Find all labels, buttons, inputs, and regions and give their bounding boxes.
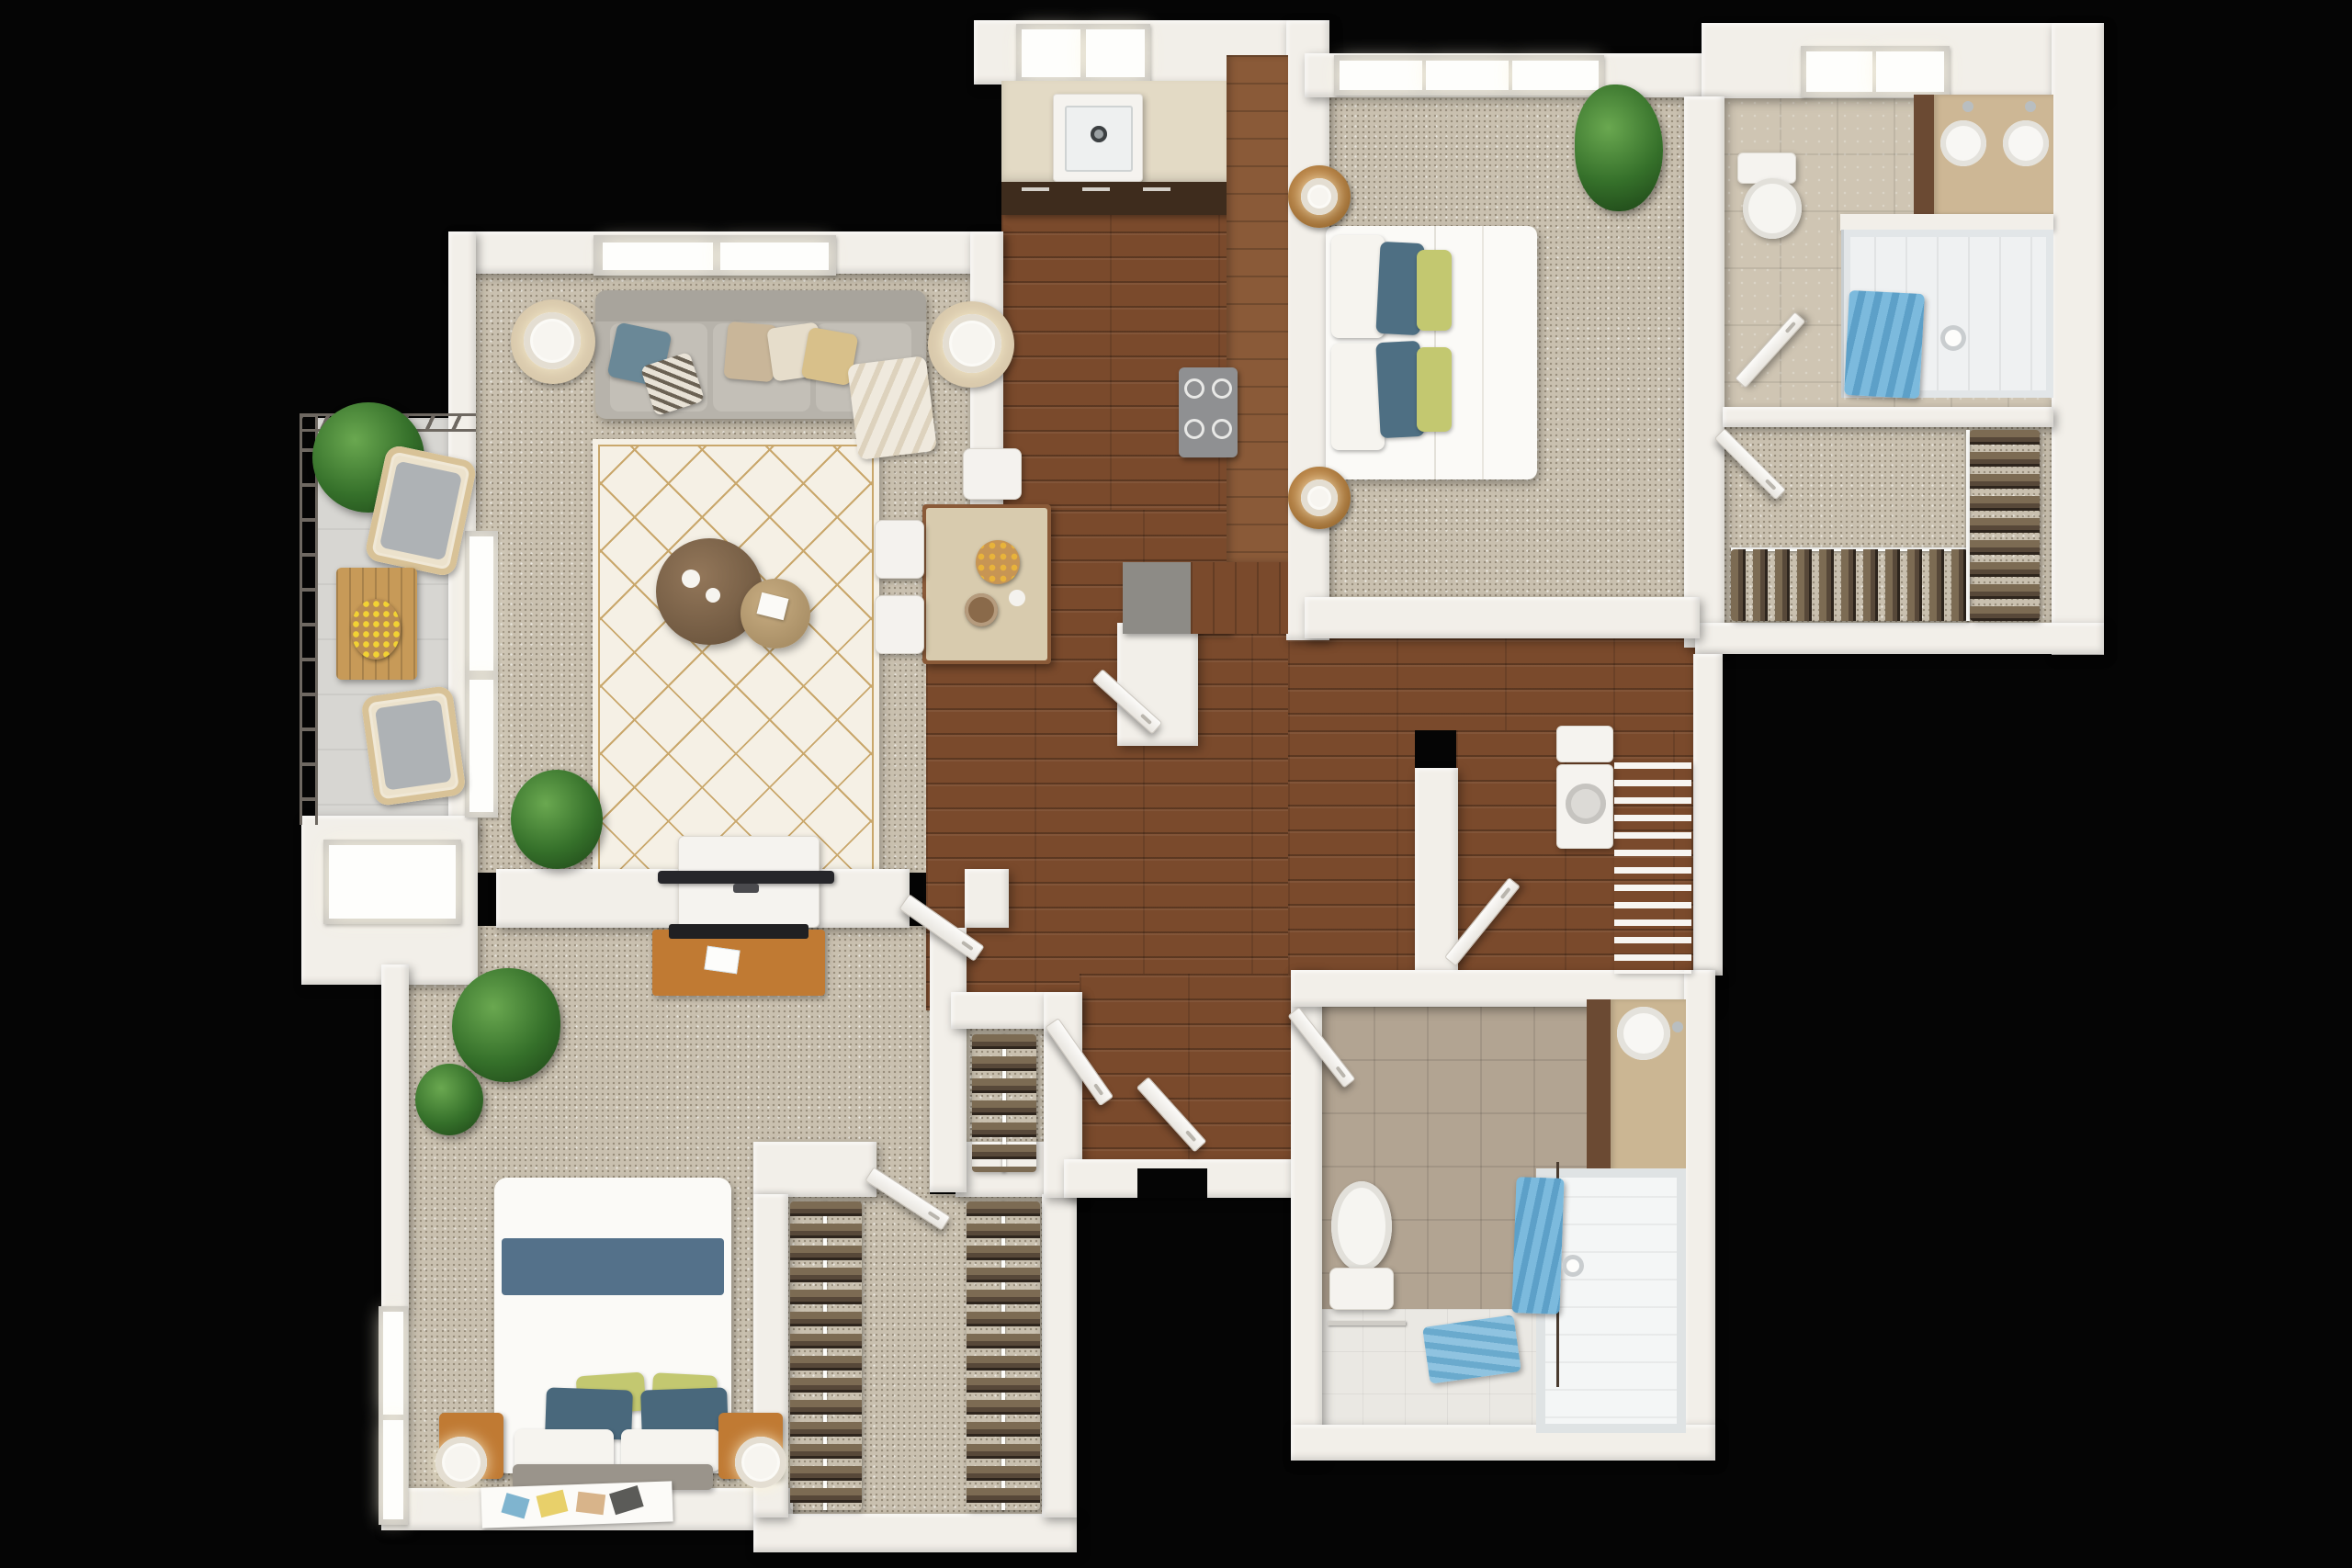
corridor-floor-a [1288,638,1695,730]
master-bath-skylight-pane [1806,51,1872,92]
art-shape [536,1490,568,1518]
island-serving-board [976,540,1020,584]
chair-cushion [379,461,462,561]
shower-drain-fixture [1940,325,1966,351]
kitchen-skylight-pane [1022,29,1080,77]
wall-bath2-right [1684,970,1715,1461]
shower-glass [1841,230,1844,398]
desk-cabinet [652,930,825,996]
kitchen-peninsula-wood [1191,562,1288,634]
wall-closet2-bottom [753,1514,1077,1552]
art-shape [609,1485,644,1515]
burner [1212,419,1232,439]
bedroom2-plant-small [415,1064,483,1135]
bedroom2-lamp [435,1437,487,1488]
burner [1212,378,1232,399]
bath2-towel [1511,1177,1564,1314]
master-closet-clothes-right [1970,430,2040,621]
master-window-pane [1512,61,1599,90]
master-shower-towel [1844,290,1925,399]
wall-divider-living-bed2-b [965,869,1009,928]
duvet-fold [1482,226,1484,479]
master-nightstand-lamp [1301,178,1338,215]
sink-drain [1091,126,1107,142]
master-vanity-base [1914,95,1934,216]
wall-bedroom2-right [930,928,967,1192]
desk-paper [704,946,740,975]
desk-keyboard-tray [669,924,808,939]
faucet [2025,101,2036,112]
tv-screen [658,871,834,884]
floor-plan-render [0,0,2352,1568]
wall-bathblock-bottom [1695,623,2104,654]
bath2-drain-fixture [1562,1255,1584,1277]
balcony-door-pane [469,536,493,671]
kitchen-sink [1053,94,1143,182]
master-sink [1940,120,1986,166]
lemon-bowl [351,599,401,660]
laundry-upper-unit [1556,726,1613,762]
tv-stand-neck [733,884,759,893]
island-stool [875,520,924,579]
master-bedroom-palm [1575,85,1663,211]
living-window-pane [720,243,829,270]
island-stool [875,595,924,654]
cabinet-handle [1022,187,1049,191]
living-room-plant [511,770,603,869]
living-room-rug [593,439,879,882]
master-window-pane [1426,61,1509,90]
master-pillow-green [1417,250,1452,331]
washer-door [1566,784,1606,824]
master-sink [2003,120,2049,166]
bath2-toilet-bowl [1331,1181,1392,1271]
coffee-table-decor [682,570,700,588]
sofa-back [595,290,926,321]
wall-closet2-top-left [753,1142,876,1197]
master-closet-clothes-bottom [1731,549,1968,621]
burner [1184,419,1204,439]
entry-door-gap [1137,1168,1207,1198]
master-pillow-green [1417,347,1452,432]
bedroom2-bed-stripe [502,1238,724,1295]
shower-ledge [1840,214,2053,231]
chair-cushion [375,699,452,790]
lamp-right [943,314,1001,373]
wall-master-bedroom-bottom [1305,597,1700,638]
bedroom2-art-print [481,1481,673,1528]
closet2-clothes-right [967,1201,1040,1510]
bedroom2-lamp [735,1437,786,1488]
coffee-table-decor [706,588,720,603]
faucet [1672,1021,1683,1032]
island-stool [963,448,1022,500]
kitchen-skylight-pane [1086,29,1145,77]
cabinet-handle [1143,187,1170,191]
faucet [1962,101,1973,112]
art-shape [576,1492,605,1515]
wall-bedroom-bath-divider [1684,96,1724,648]
lamp-left [524,312,581,369]
bath2-towel-bar [1328,1321,1406,1325]
wall-closet2-right [1042,1194,1077,1517]
balcony-door-pane [469,680,493,812]
corridor-floor-b [1288,730,1415,976]
cabinet-handle [1082,187,1110,191]
master-window-pane [1340,61,1422,90]
master-bath-skylight-pane [1876,51,1944,92]
wall-right-outer [2052,23,2104,655]
bumpout-window-pane [329,845,456,919]
wall-kitchen-bedroom [1286,20,1329,640]
island-plate [965,593,998,626]
balcony-chair-2 [360,685,467,807]
cooktop [1179,367,1238,457]
coat-closet-clothes [972,1034,1036,1172]
living-window-pane [603,243,713,270]
kitchen-counter-right [1227,55,1288,562]
bedroom2-window-pane [383,1420,403,1519]
bath2-toilet-tank [1329,1268,1394,1310]
wall-corridor-laundry [1415,768,1458,977]
island-cup [1009,590,1025,606]
bath2-sink [1617,1007,1670,1060]
art-shape [501,1493,529,1518]
closet2-clothes-left [790,1201,862,1510]
master-toilet-bowl [1743,178,1802,239]
wall-bath-closet-divider [1723,407,2053,427]
washer [1556,764,1613,849]
wall-laundry-right [1693,654,1723,976]
kitchen-island [922,504,1051,664]
island-top [926,508,1047,660]
burner [1184,378,1204,399]
master-nightstand-lamp [1301,479,1338,516]
sofa-throw-blanket [847,355,937,460]
bedroom2-window-pane [383,1312,403,1415]
wire-shelving [1614,762,1691,974]
bedroom2-plant-large [452,968,560,1082]
